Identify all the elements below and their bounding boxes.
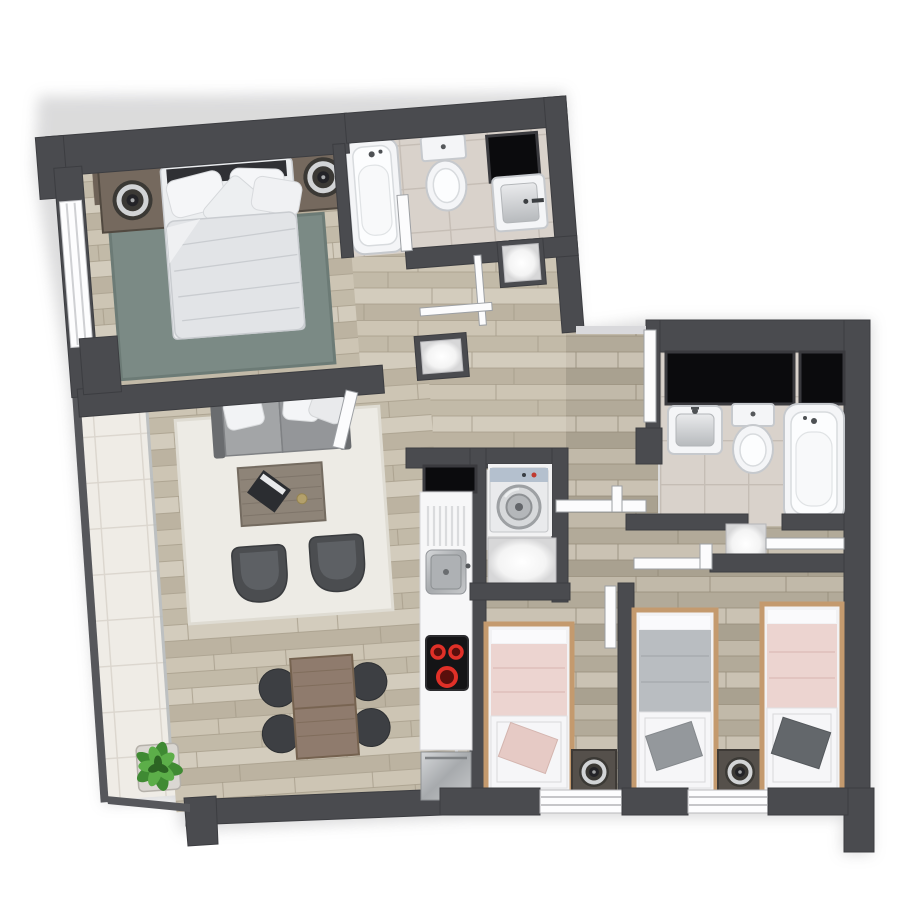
mirror-panel xyxy=(666,352,794,404)
double-bed xyxy=(160,157,314,340)
bottom-facade xyxy=(440,788,848,815)
sink xyxy=(668,406,722,454)
sink xyxy=(492,174,548,232)
laundry-closet xyxy=(486,448,568,602)
bottom-wall xyxy=(622,788,688,815)
pilaster xyxy=(636,428,662,464)
toilet xyxy=(732,404,774,473)
bathtub xyxy=(784,404,844,522)
coffee-table xyxy=(238,462,326,526)
burner xyxy=(438,668,456,686)
armchair xyxy=(231,544,289,604)
right-outer-wall xyxy=(844,320,870,852)
nightstand xyxy=(718,750,762,794)
kitchen-sink xyxy=(426,550,471,594)
bedroom3-door xyxy=(634,558,704,569)
washing-machine xyxy=(490,468,548,532)
bathroom2-top-wall xyxy=(646,320,870,352)
table-decor xyxy=(297,493,308,504)
living-wing xyxy=(72,361,458,818)
floor-plan xyxy=(0,0,920,920)
cooktop xyxy=(426,636,468,690)
entrance-door xyxy=(644,330,656,422)
window xyxy=(540,790,622,813)
living-bottom-wall-step xyxy=(184,796,218,846)
armchair xyxy=(309,534,367,594)
burner xyxy=(450,646,462,658)
kitchen-tall-cabinet xyxy=(424,466,476,492)
single-bed xyxy=(486,624,572,792)
bedroom2-door xyxy=(605,586,616,648)
bottom-wall xyxy=(768,788,848,815)
drainboard-grooves xyxy=(428,506,464,546)
single-bed xyxy=(634,610,716,792)
bedroom2-top-wall xyxy=(470,583,570,600)
bedroom-corner-wall xyxy=(79,336,121,395)
burner xyxy=(432,646,444,658)
window xyxy=(688,790,768,813)
mirror-panel xyxy=(800,352,844,404)
bathroom2-bottom-wall xyxy=(782,514,844,530)
entry-threshold xyxy=(576,326,646,334)
bathtub xyxy=(345,137,406,255)
nightstand xyxy=(572,750,616,794)
single-bed xyxy=(762,604,842,792)
nightstand xyxy=(98,166,167,233)
bottom-wall xyxy=(440,788,540,815)
closet-door-panel xyxy=(488,538,556,586)
plant xyxy=(131,739,186,794)
bedroom3-top-wall xyxy=(710,554,844,572)
